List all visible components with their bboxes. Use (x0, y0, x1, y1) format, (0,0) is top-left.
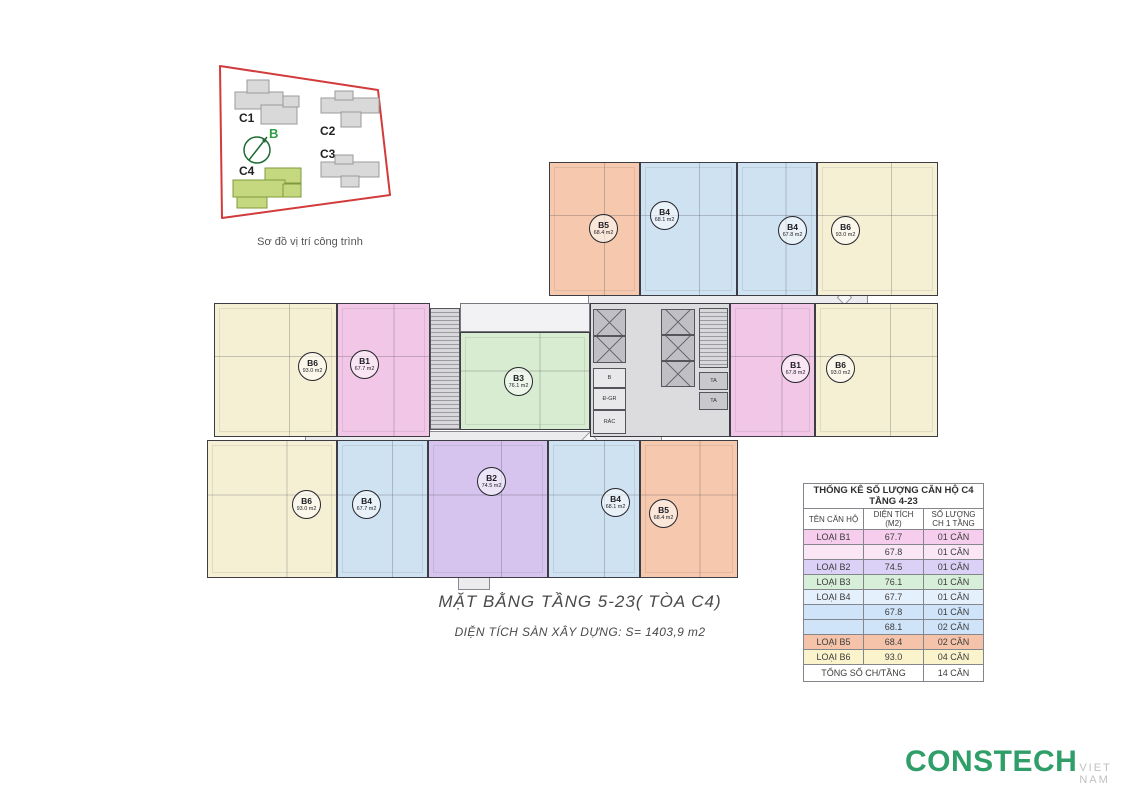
unit-area: 67.7 m2 (357, 507, 377, 513)
unit-label: B6 (307, 359, 318, 368)
elevator-shaft (661, 335, 695, 361)
unit-badge: B5 68.4 m2 (589, 214, 618, 243)
stats-header-area: DIỆN TÍCH (M2) (864, 509, 924, 530)
apartment-b4: B4 68.1 m2 (640, 162, 737, 296)
stats-table-row: LOẠI B467.701 CĂN (804, 590, 984, 605)
unit-label: B1 (359, 357, 370, 366)
apartment-b4: B4 67.7 m2 (337, 440, 428, 578)
elevator-shaft (593, 309, 626, 336)
unit-area: 93.0 m2 (303, 369, 323, 375)
unit-area: 74.5 m2 (482, 484, 502, 490)
stats-total-value: 14 CĂN (924, 665, 984, 682)
stats-table-cell: 68.1 (864, 620, 924, 635)
stats-table-cell: 02 CĂN (924, 620, 984, 635)
unit-label: B6 (301, 497, 312, 506)
plan-subtitle: DIỆN TÍCH SÀN XÂY DỰNG: S= 1403,9 m2 (380, 625, 780, 639)
stats-table-cell: 67.7 (864, 590, 924, 605)
elevator-shaft (661, 361, 695, 387)
unit-label: B4 (659, 208, 670, 217)
stats-table-cell (804, 620, 864, 635)
plan-title: MẶT BẰNG TẦNG 5-23( TÒA C4) (380, 592, 780, 612)
apartment-b6: B6 93.0 m2 (207, 440, 337, 578)
unit-badge: B6 93.0 m2 (826, 354, 855, 383)
unit-badge: B5 68.4 m2 (649, 499, 678, 528)
page: C1 C2 C3 B C4 (0, 0, 1132, 800)
stats-table-cell: 74.5 (864, 560, 924, 575)
stats-table-row: 68.102 CĂN (804, 620, 984, 635)
building-c2-label: C2 (320, 124, 336, 138)
constech-logo: CONSTECH VIET NAM (905, 745, 1132, 786)
stats-table-cell: 67.7 (864, 530, 924, 545)
unit-area: 67.8 m2 (786, 371, 806, 377)
stats-table-title: THỐNG KÊ SỐ LƯỢNG CĂN HỘ C4 TẦNG 4-23 (804, 484, 984, 509)
unit-label: B4 (787, 223, 798, 232)
apartment-b2: B2 74.5 m2 (428, 440, 548, 578)
unit-area: 76.1 m2 (509, 384, 529, 390)
unit-badge: B2 74.5 m2 (477, 467, 506, 496)
staircase-east (699, 308, 728, 368)
stats-table-cell: 01 CĂN (924, 605, 984, 620)
stats-table-cell: 01 CĂN (924, 560, 984, 575)
unit-badge: B3 76.1 m2 (504, 367, 533, 396)
technical-shaft: TA (699, 392, 728, 410)
stats-table-cell: LOẠI B2 (804, 560, 864, 575)
stats-table-cell: 68.4 (864, 635, 924, 650)
apartment-b3: B3 76.1 m2 (460, 332, 590, 430)
unit-label: B4 (361, 497, 372, 506)
unit-badge: B4 68.1 m2 (650, 201, 679, 230)
stats-header-name: TÊN CĂN HỘ (804, 509, 864, 530)
unit-area: 93.0 m2 (836, 233, 856, 239)
stats-table-row: LOẠI B693.004 CĂN (804, 650, 984, 665)
stats-table-cell (804, 545, 864, 560)
unit-area: 68.1 m2 (606, 505, 626, 511)
apartment-b5: B5 68.4 m2 (640, 440, 738, 578)
unit-label: B5 (658, 506, 669, 515)
stats-table-cell: 76.1 (864, 575, 924, 590)
apartment-b4: B4 68.1 m2 (548, 440, 640, 578)
unit-badge: B6 93.0 m2 (298, 352, 327, 381)
title-block: MẶT BẰNG TẦNG 5-23( TÒA C4) DIỆN TÍCH SÀ… (380, 592, 780, 639)
unit-badge: B6 93.0 m2 (831, 216, 860, 245)
apartment-b4: B4 67.8 m2 (737, 162, 817, 296)
trash-room: RÁC (593, 410, 626, 434)
stats-table-cell: LOẠI B6 (804, 650, 864, 665)
unit-label: B4 (610, 495, 621, 504)
unit-label: B6 (840, 223, 851, 232)
apartment-b1: B1 67.7 m2 (337, 303, 430, 437)
unit-badge: B1 67.7 m2 (350, 350, 379, 379)
unit-area: 68.4 m2 (654, 516, 674, 522)
unit-badge: B4 68.1 m2 (601, 488, 630, 517)
unit-area: 67.8 m2 (783, 233, 803, 239)
stats-table-row: LOẠI B376.101 CĂN (804, 575, 984, 590)
apartment-b6: B6 93.0 m2 (815, 303, 938, 437)
stats-table: THỐNG KÊ SỐ LƯỢNG CĂN HỘ C4 TẦNG 4-23 TÊ… (803, 483, 984, 682)
building-c2 (321, 91, 379, 127)
compass-north-label: B (269, 126, 278, 141)
unit-area: 68.1 m2 (655, 218, 675, 224)
unit-label: B6 (835, 361, 846, 370)
stats-table-cell: 93.0 (864, 650, 924, 665)
stats-table-cell: LOẠI B1 (804, 530, 864, 545)
stats-table-cell: 67.8 (864, 545, 924, 560)
lobby-area (460, 303, 590, 332)
stats-table-cell: 01 CĂN (924, 590, 984, 605)
unit-area: 93.0 m2 (831, 371, 851, 377)
apartment-b5: B5 68.4 m2 (549, 162, 640, 296)
stats-table-cell (804, 605, 864, 620)
stats-table-cell: LOẠI B5 (804, 635, 864, 650)
staircase-west (430, 308, 460, 430)
stats-header-count: SỐ LƯỢNG CH 1 TẦNG (924, 509, 984, 530)
building-c1-label: C1 (239, 111, 255, 125)
apartment-b6: B6 93.0 m2 (214, 303, 337, 437)
stats-table-row: LOẠI B568.402 CĂN (804, 635, 984, 650)
stats-table-row: LOẠI B167.701 CĂN (804, 530, 984, 545)
elevator-shaft (593, 336, 626, 363)
stats-table-cell: 67.8 (864, 605, 924, 620)
stats-total-row: TỔNG SỐ CH/TẦNG 14 CĂN (804, 665, 984, 682)
logo-subtext: VIET NAM (1079, 762, 1132, 786)
unit-label: B3 (513, 374, 524, 383)
entrance-stub (458, 576, 490, 590)
stats-table-cell: LOẠI B4 (804, 590, 864, 605)
unit-badge: B4 67.7 m2 (352, 490, 381, 519)
stats-table-cell: 04 CĂN (924, 650, 984, 665)
elevator-shaft (661, 309, 695, 335)
unit-badge: B4 67.8 m2 (778, 216, 807, 245)
stats-table-cell: 01 CĂN (924, 530, 984, 545)
stats-table-row: 67.801 CĂN (804, 545, 984, 560)
stats-table-cell: 02 CĂN (924, 635, 984, 650)
unit-label: B2 (486, 474, 497, 483)
core-room: B (593, 368, 626, 388)
stats-table-body: LOẠI B167.701 CĂN67.801 CĂNLOẠI B274.501… (804, 530, 984, 665)
stats-table-row: 67.801 CĂN (804, 605, 984, 620)
unit-label: B5 (598, 221, 609, 230)
unit-area: 93.0 m2 (297, 507, 317, 513)
logo-text: CONSTECH (905, 745, 1077, 779)
unit-badge: B1 67.8 m2 (781, 354, 810, 383)
stats-total-label: TỔNG SỐ CH/TẦNG (804, 665, 924, 682)
technical-shaft: TA (699, 372, 728, 390)
unit-area: 68.4 m2 (594, 231, 614, 237)
unit-badge: B6 93.0 m2 (292, 490, 321, 519)
unit-area: 67.7 m2 (355, 367, 375, 373)
stats-table-cell: 01 CĂN (924, 545, 984, 560)
stats-table-cell: 01 CĂN (924, 575, 984, 590)
apartment-b1: B1 67.8 m2 (730, 303, 815, 437)
stats-table-cell: LOẠI B3 (804, 575, 864, 590)
core-room: Đ-GR (593, 388, 626, 410)
stats-table-row: LOẠI B274.501 CĂN (804, 560, 984, 575)
service-core: B Đ-GR RÁC TA TA (590, 303, 730, 437)
unit-label: B1 (790, 361, 801, 370)
apartment-b6: B6 93.0 m2 (817, 162, 938, 296)
